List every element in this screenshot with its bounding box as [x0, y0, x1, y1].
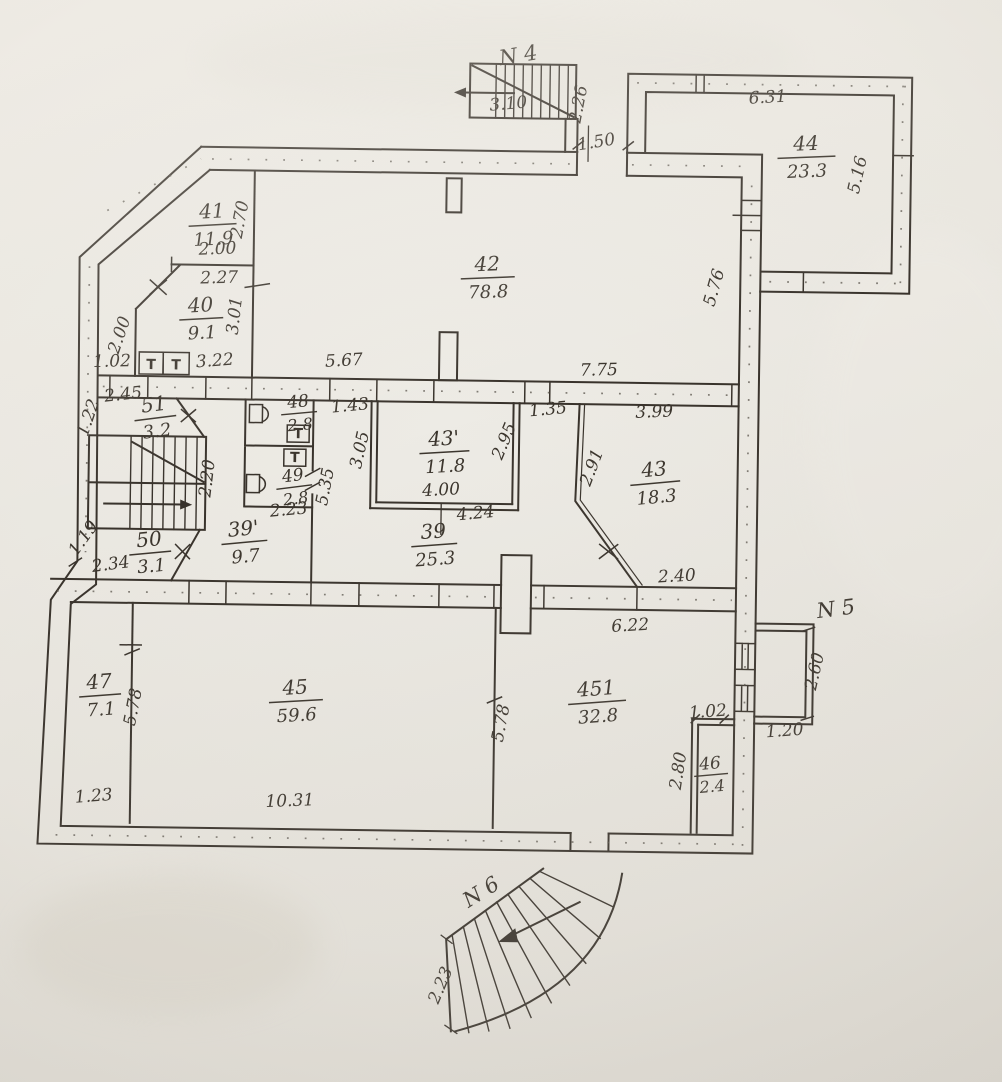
room-area: 9.7	[230, 545, 261, 569]
dim-label: 2.00	[197, 238, 237, 259]
room-number: 51	[139, 391, 167, 418]
room-number: 44	[792, 131, 819, 156]
room-area: 7.1	[86, 698, 116, 721]
room-label-44: 44 23.3	[776, 130, 836, 183]
room-number: 41	[197, 198, 225, 223]
room-label-50: 50 3.1	[127, 525, 173, 579]
room-number: 45	[281, 674, 309, 699]
dim-label: 10.31	[265, 790, 314, 812]
room-number: 39'	[227, 515, 260, 542]
room-area: 32.8	[577, 705, 619, 729]
room-area: 3.1	[136, 555, 166, 579]
door-jamb	[577, 152, 627, 176]
dim-label: 5.67	[324, 350, 363, 372]
room-label-39: 39 25.3	[409, 517, 459, 571]
dim-label: 4.00	[421, 479, 461, 501]
corridor-wall	[51, 579, 736, 612]
room-area: 78.8	[468, 281, 509, 304]
dim-label: 1.20	[765, 720, 804, 743]
dim-label: 5.16	[844, 154, 872, 196]
room-area: 2.4	[698, 776, 726, 797]
dim-label: 2.34	[90, 552, 131, 577]
dim-label: 1.35	[528, 398, 568, 421]
dim-label: 2.40	[656, 565, 696, 587]
room-label-40: 40 9.1	[178, 292, 225, 345]
fixture-letters: T T T T	[145, 357, 304, 466]
room-label-39a: 39' 9.7	[219, 514, 269, 569]
room-label-47: 47 7.1	[77, 668, 123, 722]
sink-symbol-letter: T	[293, 426, 303, 442]
room-label-42: 42 78.8	[460, 251, 516, 304]
dim-label: 5.78	[488, 703, 515, 744]
room-number: 42	[473, 251, 500, 276]
room-number: 39	[420, 518, 447, 544]
dim-label: 1.02	[93, 351, 131, 372]
toilet-symbol	[246, 404, 268, 492]
pilaster	[439, 332, 458, 380]
dim-label: 2.23	[268, 498, 309, 521]
dim-label: 2.91	[576, 446, 608, 489]
partition	[252, 171, 255, 378]
room-label-45: 45 59.6	[268, 674, 325, 728]
room-label-43: 43 18.3	[628, 455, 682, 510]
dim-label: 2.95	[488, 420, 521, 464]
room-area: 23.3	[786, 160, 828, 183]
dim-label: 3.10	[489, 92, 529, 115]
room-area: 3.2	[142, 419, 173, 443]
sink-symbol-letter: T	[290, 450, 300, 466]
room-number: 50	[135, 526, 163, 552]
room-number: 48	[285, 391, 310, 413]
room-labels: 41 11.9 40 9.1 42 78.8 44 23.3 51 3.2 48…	[76, 120, 837, 800]
stair-interior	[88, 435, 206, 530]
room-number: 451	[575, 675, 616, 702]
room-number: 43'	[427, 425, 460, 451]
column	[500, 555, 531, 633]
dim-label: 1.50	[576, 129, 617, 155]
dim-label: 4.24	[455, 502, 496, 525]
dim-label: 6.22	[611, 615, 650, 637]
dim-label: 2.80	[666, 750, 692, 792]
dim-label: 2.45	[102, 383, 143, 407]
room-label-45a: 451 32.8	[566, 674, 628, 729]
room-label-43a: 43' 11.8	[418, 425, 471, 479]
room-number: 43	[639, 456, 668, 482]
dim-label: 5.35	[312, 466, 339, 507]
dim-label: 3.22	[195, 350, 234, 373]
room-number: 47	[85, 669, 113, 695]
dim-label: 5.78	[120, 686, 147, 727]
dim-label: 5.76	[700, 267, 730, 309]
dim-label: 2.23	[424, 964, 457, 1008]
dim-label: 3.01	[223, 296, 247, 336]
dim-label: 1.43	[330, 394, 370, 417]
dim-label: 1.02	[688, 701, 727, 724]
outer-wall	[201, 147, 577, 152]
dim-label: 7.75	[580, 360, 618, 381]
dim-label: 2.70	[227, 199, 254, 241]
room-area: 59.6	[276, 704, 317, 727]
stair-n6-label: N 6	[457, 872, 503, 913]
dimension-labels: N 4 3.10 2.26 1.50 6.31 5.16 5.76 2.70 2…	[58, 34, 873, 1014]
pilaster	[446, 178, 461, 212]
partition	[172, 264, 254, 265]
sink-symbol-letter: T	[171, 357, 181, 373]
room-area: 18.3	[636, 485, 678, 510]
room-area: 11.8	[425, 455, 466, 478]
room-number: 49	[280, 465, 305, 488]
stair-n5-label: N 5	[814, 594, 856, 623]
inner-wall	[210, 170, 577, 175]
dim-label: 2.27	[199, 268, 238, 289]
scanned-floor-plan: 41 11.9 40 9.1 42 78.8 44 23.3 51 3.2 48…	[0, 0, 1002, 1082]
room-number: 40	[186, 292, 214, 317]
partition	[579, 404, 645, 585]
sink-symbol-letter: T	[146, 357, 156, 373]
room-number: 46	[697, 753, 722, 775]
room-area: 9.1	[187, 322, 217, 345]
dim-label: 3.99	[635, 401, 674, 422]
floor-plan-drawing: 41 11.9 40 9.1 42 78.8 44 23.3 51 3.2 48…	[0, 0, 1002, 1082]
dim-label: 6.31	[748, 87, 787, 109]
dim-label: 1.23	[74, 785, 113, 808]
room-area: 25.3	[414, 548, 457, 572]
dim-label: 2.60	[801, 651, 829, 693]
dim-label: 2.20	[195, 458, 219, 499]
